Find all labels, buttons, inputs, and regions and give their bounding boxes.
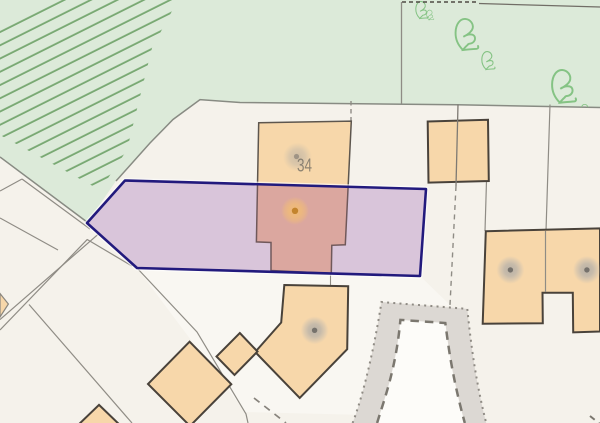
svg-text:34: 34: [297, 156, 312, 176]
